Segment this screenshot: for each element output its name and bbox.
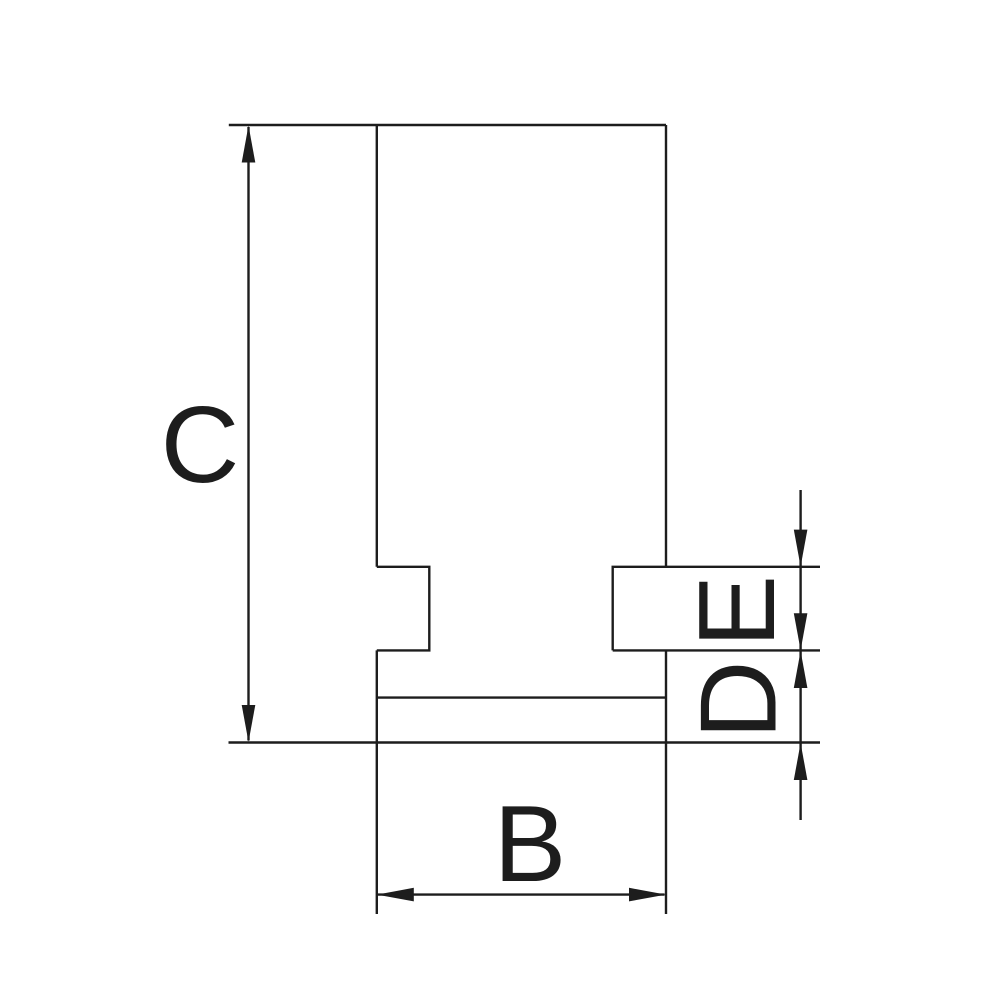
svg-text:C: C (161, 384, 240, 506)
svg-text:D: D (678, 661, 800, 740)
svg-text:E: E (676, 575, 798, 648)
svg-text:B: B (494, 783, 567, 905)
